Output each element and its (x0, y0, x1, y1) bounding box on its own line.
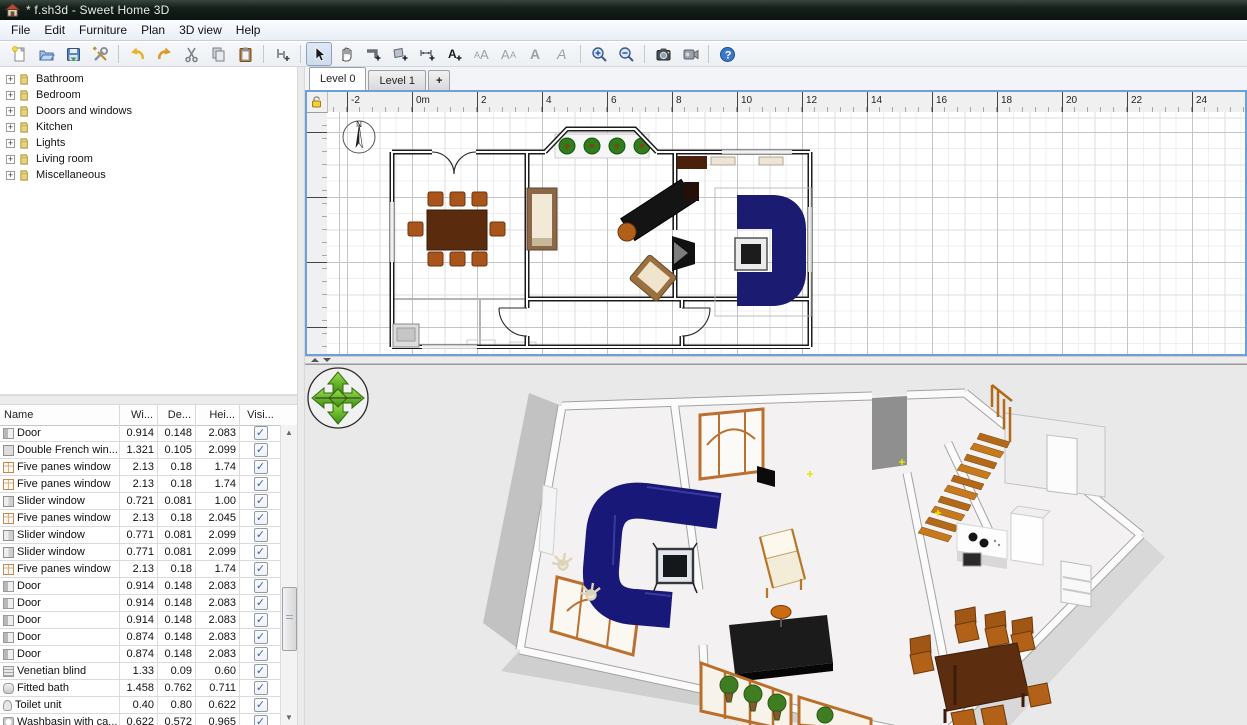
new-document-icon (11, 46, 28, 63)
furniture-height: 0.60 (196, 663, 240, 679)
ruler-label: 22 (1127, 92, 1142, 112)
vertical-splitter[interactable] (297, 67, 305, 725)
zoom-out-button[interactable] (613, 42, 639, 66)
plan-canvas[interactable]: N (327, 112, 1245, 354)
table-row[interactable]: Five panes window2.130.181.74 (0, 459, 281, 476)
furniture-depth: 0.80 (158, 697, 196, 713)
column-header-depth[interactable]: De... (158, 405, 196, 425)
table-row[interactable]: Five panes window2.130.182.045 (0, 510, 281, 527)
furniture-depth: 0.148 (158, 646, 196, 662)
table-row[interactable]: Toilet unit0.400.800.622 (0, 697, 281, 714)
expand-icon[interactable]: + (6, 139, 15, 148)
window-icon (3, 530, 14, 541)
table-row[interactable]: Slider window0.7210.0811.00 (0, 493, 281, 510)
italic-button[interactable]: A (549, 42, 575, 66)
furniture-height: 0.711 (196, 680, 240, 696)
window-title: * f.sh3d - Sweet Home 3D (26, 3, 170, 17)
furniture-width: 2.13 (120, 510, 158, 526)
tab-level-0[interactable]: Level 0 (309, 67, 366, 90)
visible-checkbox[interactable] (254, 698, 268, 712)
help-icon: ? (719, 46, 736, 63)
visible-checkbox[interactable] (254, 545, 268, 559)
svg-text:A: A (501, 47, 510, 62)
furniture-height: 2.083 (196, 629, 240, 645)
blind-icon (3, 666, 14, 677)
furniture-depth: 0.081 (158, 527, 196, 543)
door-icon (3, 649, 14, 660)
menu-3d-view[interactable]: 3D view (172, 21, 229, 39)
furniture-depth: 0.18 (158, 476, 196, 492)
tab-level-1[interactable]: Level 1 (368, 70, 425, 90)
table-header: Name Wi... De... Hei... Visi... (0, 405, 297, 426)
sweet-home-3d-window: * f.sh3d - Sweet Home 3D File Edit Furni… (0, 0, 1247, 725)
add-text-icon: A (446, 46, 463, 63)
furniture-depth: 0.762 (158, 680, 196, 696)
paste-icon (237, 46, 254, 63)
title-bar[interactable]: * f.sh3d - Sweet Home 3D (0, 0, 1247, 20)
bold-icon: A (527, 46, 544, 63)
door-icon (3, 581, 14, 592)
tv[interactable] (672, 236, 695, 271)
furniture-name: Door (17, 614, 41, 626)
visible-checkbox[interactable] (254, 647, 268, 661)
bold-button[interactable]: A (522, 42, 548, 66)
copy-button[interactable] (205, 42, 231, 66)
round-stool[interactable] (618, 223, 636, 241)
increase-text-size-button[interactable]: AA (495, 42, 521, 66)
visible-checkbox[interactable] (254, 426, 268, 440)
furniture-depth: 0.148 (158, 595, 196, 611)
furniture-width: 0.914 (120, 425, 158, 441)
folder-icon (19, 105, 32, 118)
furniture-name: Five panes window (17, 563, 111, 575)
furniture-height: 2.045 (196, 510, 240, 526)
furniture-name: Door (17, 648, 41, 660)
create-video-icon (682, 46, 699, 63)
tree-item-bathroom[interactable]: +Bathroom (0, 71, 297, 87)
bath-icon (3, 683, 14, 694)
menu-bar: File Edit Furniture Plan 3D view Help (0, 20, 1247, 41)
paste-button[interactable] (232, 42, 258, 66)
save-icon (65, 46, 82, 63)
visible-checkbox[interactable] (254, 715, 268, 725)
table-row[interactable]: Washbasin with ca...0.6220.5720.965 (0, 714, 281, 725)
furniture-name: Door (17, 631, 41, 643)
toolbar-separator (263, 45, 264, 63)
redo-icon (156, 46, 173, 63)
tree-item-label: Doors and windows (36, 105, 132, 117)
3d-view[interactable] (305, 364, 1247, 725)
pan-tool-button[interactable] (333, 42, 359, 66)
loveseat[interactable] (527, 188, 557, 250)
tree-item-miscellaneous[interactable]: +Miscellaneous (0, 167, 297, 183)
help-button[interactable]: ? (714, 42, 740, 66)
door-icon (3, 598, 14, 609)
furniture-width: 0.874 (120, 629, 158, 645)
ruler-label: 0m (307, 132, 327, 144)
select-tool-button[interactable] (306, 42, 332, 66)
door-icon (3, 428, 14, 439)
window-icon (3, 496, 14, 507)
visible-checkbox[interactable] (254, 460, 268, 474)
ruler-label: 8 (672, 92, 682, 112)
expand-icon[interactable]: + (6, 91, 15, 100)
scroll-up-button[interactable]: ▲ (281, 425, 297, 440)
dining-table[interactable] (408, 192, 505, 266)
furniture-height: 2.083 (196, 595, 240, 611)
visible-checkbox[interactable] (254, 630, 268, 644)
create-rooms-icon (392, 46, 409, 63)
window-icon (3, 547, 14, 558)
furniture-depth: 0.148 (158, 629, 196, 645)
visible-checkbox[interactable] (254, 613, 268, 627)
svg-text:A: A (480, 47, 489, 62)
furniture-width: 0.914 (120, 612, 158, 628)
zoom-in-button[interactable] (586, 42, 612, 66)
expand-icon[interactable]: + (6, 75, 15, 84)
armchair[interactable] (629, 254, 677, 302)
furniture-height: 2.099 (196, 527, 240, 543)
furniture-name: Fitted bath (17, 682, 69, 694)
table-row[interactable]: Slider window0.7710.0812.099 (0, 527, 281, 544)
create-photo-button[interactable] (650, 42, 676, 66)
wall-shelf[interactable] (759, 157, 783, 165)
toolbar-separator (300, 45, 301, 63)
column-header-visible[interactable]: Visi... (240, 405, 281, 425)
furniture-width: 2.13 (120, 561, 158, 577)
tree-item-label: Lights (36, 137, 65, 149)
redo-button[interactable] (151, 42, 177, 66)
pan-hand-icon (338, 46, 355, 63)
furniture-height: 2.083 (196, 425, 240, 441)
furniture-height: 2.099 (196, 544, 240, 560)
tree-item-label: Kitchen (36, 121, 73, 133)
expand-icon[interactable]: + (6, 155, 15, 164)
furniture-width: 2.13 (120, 476, 158, 492)
furniture-name: Five panes window (17, 512, 111, 524)
furniture-depth: 0.148 (158, 578, 196, 594)
door-icon (3, 632, 14, 643)
plan-and-3d-area: Level 0 Level 1 + -2 0m 2 4 6 8 10 12 14 (305, 67, 1247, 725)
menu-plan[interactable]: Plan (134, 21, 172, 39)
door-icon (3, 615, 14, 626)
folder-icon (19, 137, 32, 150)
furniture-width: 0.771 (120, 527, 158, 543)
svg-text:?: ? (724, 49, 731, 61)
sideboard[interactable] (677, 156, 707, 169)
column-header-name[interactable]: Name (0, 405, 120, 425)
furniture-depth: 0.09 (158, 663, 196, 679)
furniture-depth: 0.081 (158, 544, 196, 560)
furniture-height: 2.083 (196, 646, 240, 662)
ruler-label: 4 (542, 92, 552, 112)
window-icon (3, 479, 14, 490)
visible-checkbox[interactable] (254, 579, 268, 593)
menu-furniture[interactable]: Furniture (72, 21, 134, 39)
washbasin-icon (3, 717, 14, 725)
create-rooms-button[interactable] (387, 42, 413, 66)
ruler-label: 20 (1062, 92, 1077, 112)
furniture-depth: 0.18 (158, 459, 196, 475)
furniture-height: 2.083 (196, 578, 240, 594)
table-row[interactable]: Five panes window2.130.181.74 (0, 476, 281, 493)
undo-button[interactable] (124, 42, 150, 66)
vertical-ruler: 0m 2 4 6 (307, 112, 328, 354)
tree-item-doors-and-windows[interactable]: +Doors and windows (0, 103, 297, 119)
furniture-depth: 0.081 (158, 493, 196, 509)
furniture-depth: 0.148 (158, 612, 196, 628)
furniture-name: Washbasin with ca... (17, 716, 117, 725)
copy-icon (210, 46, 227, 63)
toolbar-separator (118, 45, 119, 63)
ruler-label: 24 (1192, 92, 1207, 112)
folder-icon (19, 89, 32, 102)
table-row[interactable]: Door0.9140.1482.083 (0, 612, 281, 629)
furniture-name: Five panes window (17, 461, 111, 473)
cut-icon (183, 46, 200, 63)
add-furniture-icon (274, 46, 291, 63)
window-icon (3, 513, 14, 524)
menu-edit[interactable]: Edit (37, 21, 72, 39)
create-photo-icon (655, 46, 672, 63)
tree-item-label: Bedroom (36, 89, 81, 101)
table-row[interactable]: Door0.8740.1482.083 (0, 629, 281, 646)
preferences-button[interactable] (87, 42, 113, 66)
toolbar-separator (580, 45, 581, 63)
ruler-label: -2 (347, 92, 360, 112)
open-button[interactable] (33, 42, 59, 66)
window-icon (3, 564, 14, 575)
table-row[interactable]: Fitted bath1.4580.7620.711 (0, 680, 281, 697)
zoom-out-icon (618, 46, 635, 63)
level-tabs: Level 0 Level 1 + (305, 67, 1247, 90)
furniture-name: Door (17, 597, 41, 609)
folder-icon (19, 73, 32, 86)
main-area: +Bathroom +Bedroom +Doors and windows +K… (0, 67, 1247, 725)
furniture-depth: 0.105 (158, 442, 196, 458)
furniture-name: Slider window (17, 529, 85, 541)
ruler-label: 12 (802, 92, 817, 112)
furniture-height: 1.74 (196, 476, 240, 492)
table-row[interactable]: Five panes window2.130.181.74 (0, 561, 281, 578)
create-dimensions-icon (419, 46, 436, 63)
visible-checkbox[interactable] (254, 664, 268, 678)
furniture-depth: 0.18 (158, 510, 196, 526)
furniture-depth: 0.18 (158, 561, 196, 577)
table-row[interactable]: Door0.9140.1482.083 (0, 425, 281, 442)
ruler-label: 16 (932, 92, 947, 112)
ruler-label: 6 (607, 92, 617, 112)
folder-icon (19, 121, 32, 134)
furniture-name: Slider window (17, 495, 85, 507)
toolbar-separator (708, 45, 709, 63)
tree-item-living-room[interactable]: +Living room (0, 151, 297, 167)
create-walls-button[interactable] (360, 42, 386, 66)
window-icon (3, 462, 14, 473)
tree-item-label: Miscellaneous (36, 169, 106, 181)
furniture-name: Double French win... (17, 444, 118, 456)
furniture-height: 0.622 (196, 697, 240, 713)
window-icon (3, 445, 14, 456)
furniture-width: 0.771 (120, 544, 158, 560)
visible-checkbox[interactable] (254, 528, 268, 542)
tree-item-label: Bathroom (36, 73, 84, 85)
menu-file[interactable]: File (4, 21, 37, 39)
furniture-width: 0.914 (120, 595, 158, 611)
toolbar: A AA AA A A ? (0, 42, 1247, 67)
toilet-icon (3, 700, 12, 711)
ruler-label: 18 (997, 92, 1012, 112)
table-row[interactable]: Door0.9140.1482.083 (0, 595, 281, 612)
furniture-catalog-tree: +Bathroom +Bedroom +Doors and windows +K… (0, 67, 297, 395)
speaker[interactable] (684, 182, 699, 201)
column-header-height[interactable]: Hei... (196, 405, 240, 425)
furniture-name: Slider window (17, 546, 85, 558)
ruler-label: 4 (307, 262, 327, 274)
save-button[interactable] (60, 42, 86, 66)
visible-checkbox[interactable] (254, 681, 268, 695)
svg-text:A: A (510, 50, 516, 60)
furniture-depth: 0.572 (158, 714, 196, 725)
menu-help[interactable]: Help (229, 21, 268, 39)
table-row[interactable]: Door0.8740.1482.083 (0, 646, 281, 663)
catalog-panel: +Bathroom +Bedroom +Doors and windows +K… (0, 67, 297, 725)
add-text-button[interactable]: A (441, 42, 467, 66)
visible-checkbox[interactable] (254, 477, 268, 491)
plan-viewport[interactable]: -2 0m 2 4 6 8 10 12 14 16 18 20 22 24 (305, 90, 1247, 356)
add-furniture-button[interactable] (269, 42, 295, 66)
furniture-width: 0.874 (120, 646, 158, 662)
furniture-width: 0.622 (120, 714, 158, 725)
expand-icon[interactable]: + (6, 123, 15, 132)
ruler-label: 10 (737, 92, 752, 112)
new-document-button[interactable] (6, 42, 32, 66)
ruler-label: 2 (477, 92, 487, 112)
folder-icon (19, 153, 32, 166)
arched-window-back (700, 409, 763, 479)
expand-icon[interactable]: + (6, 107, 15, 116)
visible-checkbox[interactable] (254, 443, 268, 457)
furniture-list: Name Wi... De... Hei... Visi... Door0.91… (0, 405, 297, 725)
svg-text:A: A (556, 46, 566, 62)
furniture-height: 1.00 (196, 493, 240, 509)
svg-text:A: A (530, 46, 540, 62)
collapse-down-button[interactable] (323, 358, 331, 362)
table-row[interactable]: Slider window0.7710.0812.099 (0, 544, 281, 561)
table-body: Door0.9140.1482.083 Double French win...… (0, 425, 281, 725)
ruler-label: 2 (307, 197, 327, 209)
italic-icon: A (554, 46, 571, 63)
table-scrollbar[interactable]: ▲ ▼ (280, 425, 297, 725)
app-icon (5, 3, 20, 18)
3d-navigation-compass[interactable] (308, 368, 368, 428)
create-dimensions-button[interactable] (414, 42, 440, 66)
wall-shelf[interactable] (711, 157, 735, 165)
plan-panel: Level 0 Level 1 + -2 0m 2 4 6 8 10 12 14 (305, 67, 1247, 356)
furniture-name: Door (17, 580, 41, 592)
visible-checkbox[interactable] (254, 562, 268, 576)
table-row[interactable]: Double French win...1.3210.1052.099 (0, 442, 281, 459)
tree-item-label: Living room (36, 153, 93, 165)
horizontal-ruler: -2 0m 2 4 6 8 10 12 14 16 18 20 22 24 (307, 92, 1245, 113)
ruler-label: 0m (412, 92, 430, 112)
open-folder-icon (38, 46, 55, 63)
undo-icon (129, 46, 146, 63)
visible-checkbox[interactable] (254, 596, 268, 610)
furniture-width: 1.321 (120, 442, 158, 458)
furniture-width: 0.914 (120, 578, 158, 594)
visible-checkbox[interactable] (254, 494, 268, 508)
furniture-height: 0.965 (196, 714, 240, 725)
decrease-text-size-button[interactable]: AA (468, 42, 494, 66)
furniture-height: 2.099 (196, 442, 240, 458)
column-header-width[interactable]: Wi... (120, 405, 158, 425)
preferences-icon (92, 46, 109, 63)
compass-icon[interactable]: N (343, 120, 375, 153)
expand-icon[interactable]: + (6, 171, 15, 180)
furniture-width: 1.458 (120, 680, 158, 696)
visible-checkbox[interactable] (254, 511, 268, 525)
plan-3d-divider[interactable] (305, 356, 1247, 364)
furniture-width: 1.33 (120, 663, 158, 679)
horizontal-splitter[interactable] (0, 395, 297, 405)
ruler-label: 14 (867, 92, 882, 112)
furniture-height: 2.083 (196, 612, 240, 628)
table-row[interactable]: Door0.9140.1482.083 (0, 578, 281, 595)
furniture-width: 0.40 (120, 697, 158, 713)
tree-item-bedroom[interactable]: +Bedroom (0, 87, 297, 103)
unlock-icon (310, 95, 324, 109)
washing-machine[interactable] (393, 324, 419, 347)
increase-text-size-icon: AA (500, 46, 517, 63)
ruler-corner (307, 92, 328, 113)
furniture-name: Toilet unit (15, 699, 61, 711)
ruler-label: 6 (307, 327, 327, 339)
select-arrow-icon (311, 46, 328, 63)
folder-icon (19, 169, 32, 182)
furniture-width: 0.721 (120, 493, 158, 509)
add-level-tab[interactable]: + (428, 70, 450, 90)
scroll-down-button[interactable]: ▼ (281, 710, 297, 725)
furniture-depth: 0.148 (158, 425, 196, 441)
create-video-button[interactable] (677, 42, 703, 66)
scrollbar-thumb[interactable] (282, 587, 297, 651)
tree-item-lights[interactable]: +Lights (0, 135, 297, 151)
furniture-width: 2.13 (120, 459, 158, 475)
toolbar-separator (644, 45, 645, 63)
furniture-height: 1.74 (196, 459, 240, 475)
table-row[interactable]: Venetian blind1.330.090.60 (0, 663, 281, 680)
collapse-up-button[interactable] (311, 358, 319, 362)
cut-button[interactable] (178, 42, 204, 66)
furniture-name: Door (17, 427, 41, 439)
create-walls-icon (365, 46, 382, 63)
furniture-name: Venetian blind (17, 665, 86, 677)
decrease-text-size-icon: AA (473, 46, 490, 63)
furniture-height: 1.74 (196, 561, 240, 577)
zoom-in-icon (591, 46, 608, 63)
white-door (1047, 435, 1077, 495)
tree-item-kitchen[interactable]: +Kitchen (0, 119, 297, 135)
floor-plan-drawing: N (327, 112, 1247, 349)
coffee-table[interactable] (735, 238, 767, 270)
svg-text:A: A (448, 47, 457, 61)
3d-scene (305, 365, 1245, 725)
furniture-name: Five panes window (17, 478, 111, 490)
